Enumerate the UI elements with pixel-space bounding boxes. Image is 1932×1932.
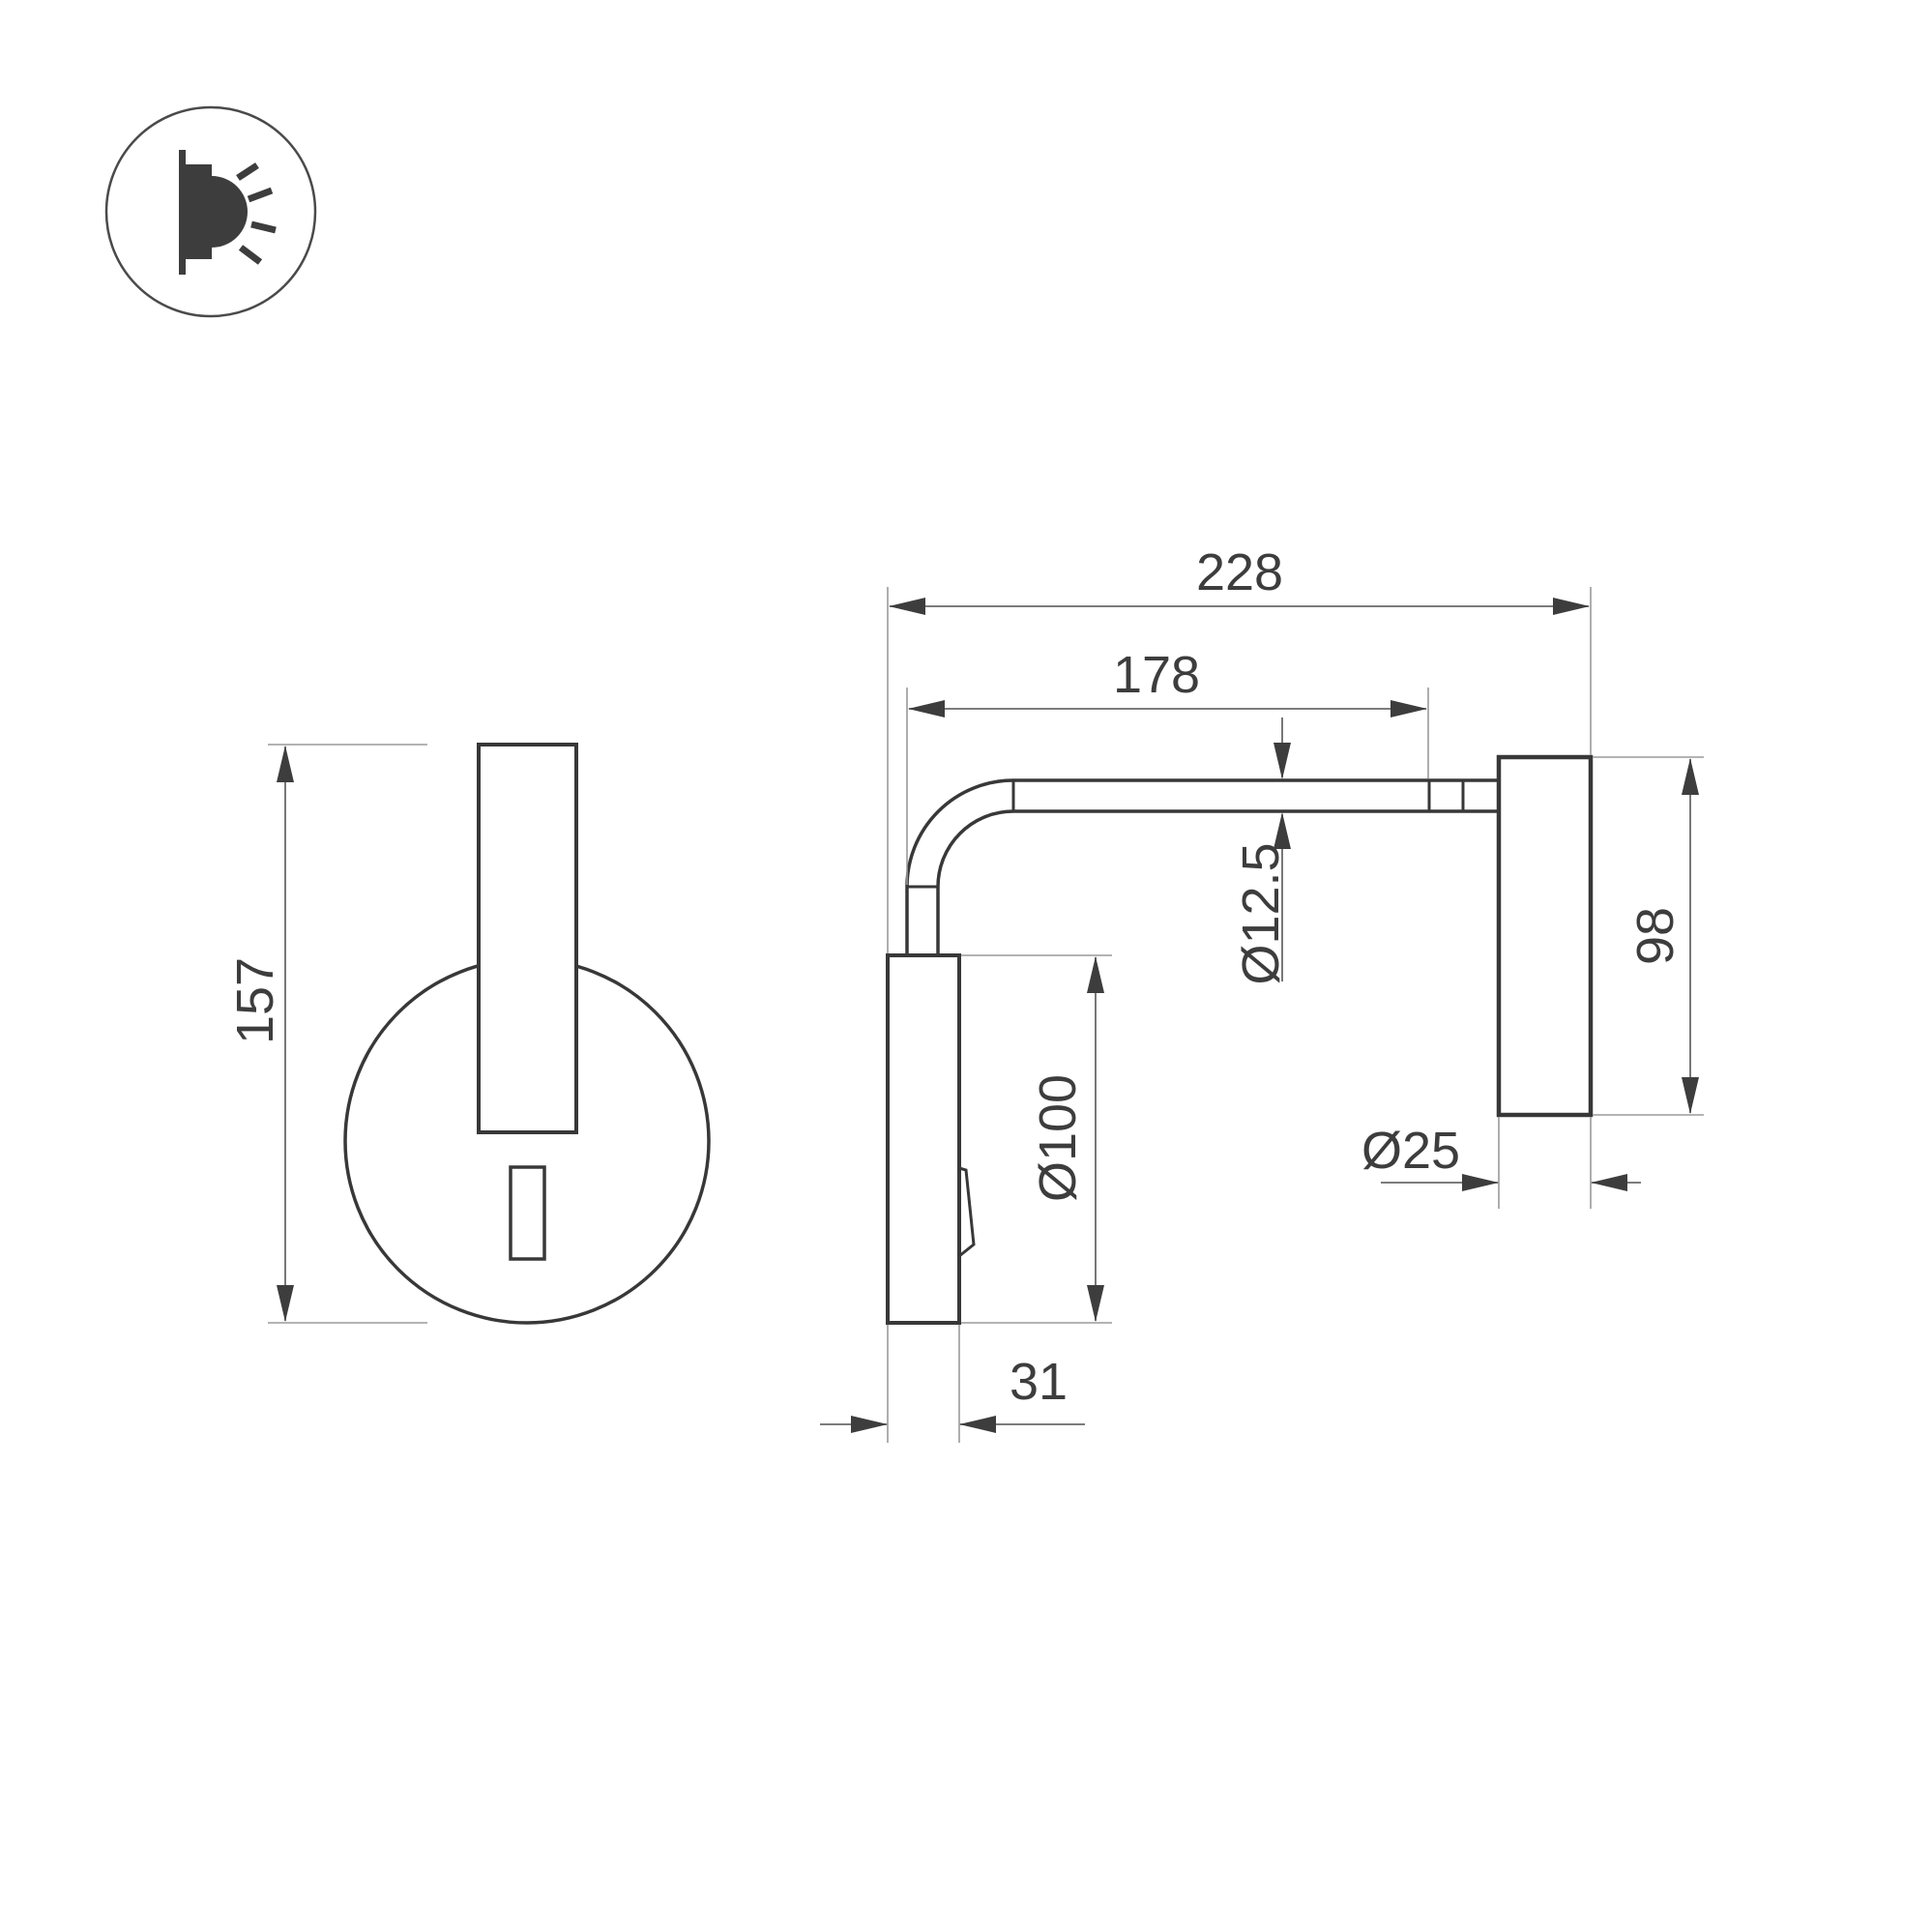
arrow-down [277, 1285, 294, 1322]
icon-lamp-body [186, 164, 212, 259]
icon-ray-4 [241, 248, 260, 262]
arrow-up [277, 746, 294, 782]
arrow-left [908, 700, 945, 717]
dim-label-arm-length: 178 [1113, 646, 1200, 704]
dim-label-base-depth: 31 [1010, 1353, 1068, 1411]
icon-light-dome [212, 176, 248, 248]
dim-front-height: 157 [226, 745, 427, 1323]
dim-label-tube-diameter: Ø12.5 [1232, 842, 1290, 984]
arrow-right [1390, 700, 1427, 717]
icon-ray-2 [249, 190, 272, 199]
dim-head-diameter: Ø25 [1361, 1117, 1641, 1209]
icon-wall-line [179, 150, 186, 275]
front-switch [511, 1167, 544, 1259]
side-switch-lever [959, 1168, 974, 1256]
front-lamp-body [479, 745, 576, 1132]
dim-label-front-height: 157 [226, 957, 284, 1044]
dim-label-head-diameter: Ø25 [1361, 1122, 1460, 1180]
dim-base-depth: 31 [820, 1325, 1085, 1443]
dim-label-base-diameter: Ø100 [1029, 1074, 1087, 1202]
arrow-up [1682, 758, 1699, 795]
arrow-down [1682, 1077, 1699, 1114]
drawing-sheet: 157 228 [0, 0, 1932, 1932]
arrow-right [1462, 1174, 1499, 1191]
arrow-left [1591, 1174, 1627, 1191]
dim-label-head-length: 98 [1626, 907, 1684, 965]
front-view: 157 [226, 745, 709, 1323]
side-base [888, 955, 959, 1323]
arrow-left [889, 598, 925, 615]
arrow-up [1087, 956, 1104, 993]
arrow-left [959, 1416, 996, 1433]
side-view: 228 178 Ø12.5 98 [820, 543, 1704, 1443]
dim-tube-diameter: Ø12.5 [1232, 717, 1291, 985]
arrow-right [1553, 598, 1590, 615]
dim-base-diameter: Ø100 [961, 955, 1112, 1323]
wall-light-emission-icon [106, 107, 315, 316]
arrow-down [1273, 743, 1291, 779]
dim-label-total-depth: 228 [1196, 543, 1283, 601]
dimension-drawing: 157 228 [0, 0, 1932, 1932]
icon-ray-1 [238, 165, 257, 178]
dim-head-length: 98 [1593, 757, 1704, 1115]
icon-ray-3 [251, 224, 276, 230]
tube-bend-inner [938, 811, 1013, 887]
arrow-down [1087, 1285, 1104, 1322]
side-lamp-head [1499, 757, 1591, 1115]
side-arm-tube [907, 780, 1499, 955]
dim-arm-length: 178 [907, 646, 1428, 885]
arrow-right [851, 1416, 888, 1433]
